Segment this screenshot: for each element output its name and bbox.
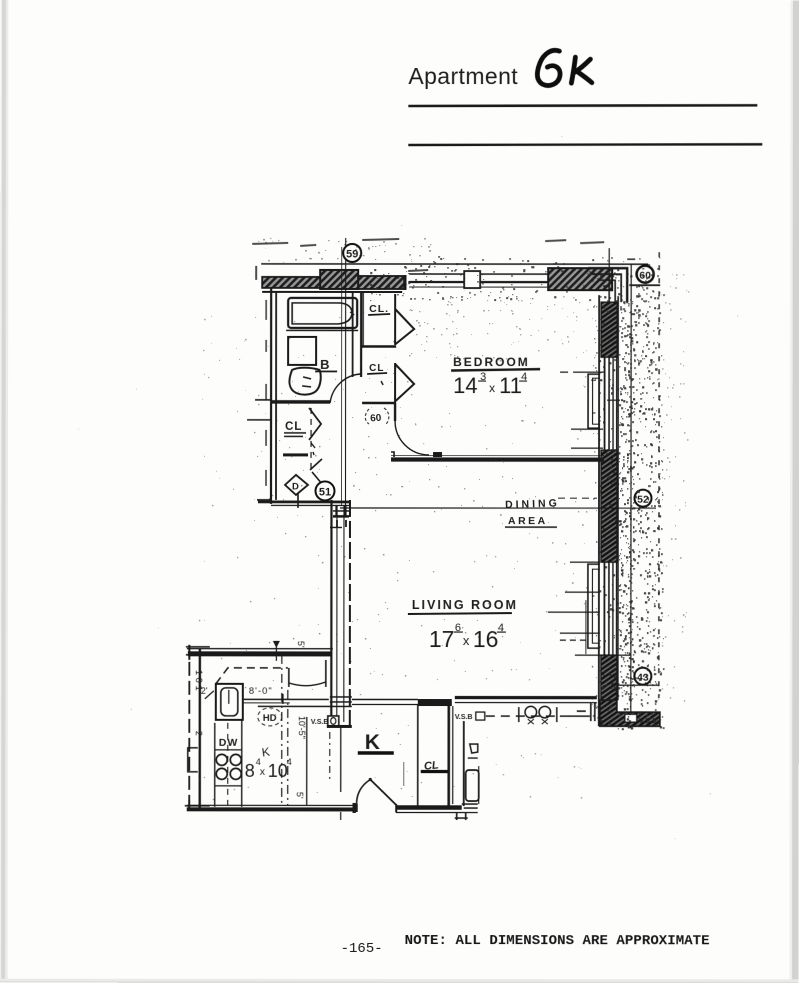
svg-text:10: 10 [268, 761, 288, 781]
svg-text:17: 17 [429, 626, 455, 652]
svg-text:DINING: DINING [505, 497, 560, 511]
svg-text:52: 52 [637, 494, 649, 506]
svg-text:-165-: -165- [341, 941, 383, 957]
svg-text:5': 5' [295, 792, 305, 799]
svg-text:BEDROOM: BEDROOM [453, 355, 530, 369]
svg-text:43: 43 [637, 672, 649, 684]
svg-text:K: K [365, 731, 380, 754]
svg-text:V.S.K: V.S.K [639, 716, 658, 725]
svg-text:10'-5": 10'-5" [297, 716, 307, 739]
svg-text:V.S.B: V.S.B [311, 719, 329, 726]
svg-text:8: 8 [245, 761, 255, 781]
svg-text:x: x [489, 381, 495, 395]
svg-text:Apartment: Apartment [408, 63, 518, 89]
svg-text:CL: CL [369, 363, 384, 374]
svg-text:4: 4 [287, 757, 292, 767]
svg-text:DW: DW [219, 737, 239, 749]
svg-text:LIVING ROOM: LIVING ROOM [412, 598, 518, 612]
svg-text:AREA: AREA [508, 515, 548, 527]
svg-text:14: 14 [453, 373, 478, 398]
svg-text:x: x [463, 633, 470, 648]
svg-text:51: 51 [319, 486, 331, 498]
svg-text:CL.: CL. [369, 303, 389, 315]
svg-text:8'-0": 8'-0" [249, 686, 273, 697]
svg-text:CL: CL [285, 421, 302, 433]
svg-text:11: 11 [499, 373, 522, 398]
svg-text:5': 5' [296, 641, 306, 648]
svg-text:HD: HD [263, 713, 277, 724]
svg-text:2: 2 [194, 731, 204, 736]
svg-text:2': 2' [201, 686, 208, 696]
svg-text:x: x [260, 766, 266, 778]
svg-text:60: 60 [639, 270, 651, 282]
svg-text:D: D [292, 481, 299, 492]
svg-text:B: B [320, 357, 329, 372]
svg-text:16: 16 [473, 626, 499, 652]
svg-text:V.S.B: V.S.B [455, 714, 473, 721]
svg-text:NOTE: ALL DIMENSIONS ARE APPRO: NOTE: ALL DIMENSIONS ARE APPROXIMATE [405, 933, 710, 949]
svg-text:60: 60 [370, 413, 382, 425]
